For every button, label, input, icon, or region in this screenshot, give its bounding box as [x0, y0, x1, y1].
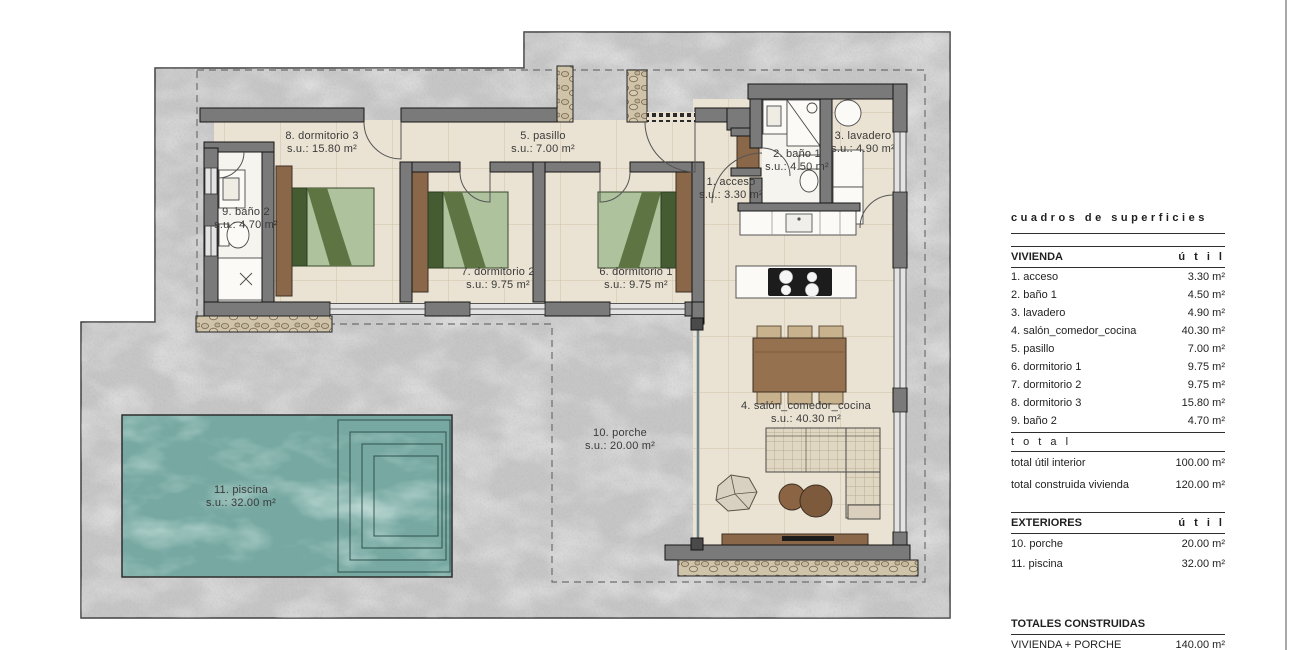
cooktop [768, 268, 832, 296]
table-row: total útil interior100.00 m² [1011, 452, 1225, 474]
laundry-sink [835, 100, 861, 126]
exteriores-header: EXTERIORES [1011, 517, 1082, 529]
gravel-strip [196, 316, 332, 332]
porch-post [691, 318, 703, 330]
util-column-header: ú t i l [1178, 251, 1225, 263]
table-row: 8. dormitorio 315.80 m² [1011, 394, 1225, 412]
table-row: VIVIENDA + PORCHE140.00 m² [1011, 635, 1225, 650]
bed [428, 192, 508, 268]
dining-set [753, 326, 846, 404]
room-label-lavadero: 3. lavadero s.u.: 4.90 m² [831, 130, 895, 155]
table-row: 1. acceso3.30 m² [1011, 268, 1225, 286]
table-row: 6. dormitorio 19.75 m² [1011, 358, 1225, 376]
room-label-dormitorio2: 7. dormitorio 2 s.u.: 9.75 m² [461, 266, 534, 291]
table-row: 4. salón_comedor_cocina40.30 m² [1011, 322, 1225, 340]
bed [292, 188, 374, 266]
washer [833, 150, 863, 187]
chair [788, 326, 812, 339]
shower-head [807, 103, 817, 113]
room-label-porche: 10. porche s.u.: 20.00 m² [585, 427, 655, 452]
wardrobe [412, 172, 428, 292]
room-label-dormitorio3: 8. dormitorio 3 s.u.: 15.80 m² [285, 130, 358, 155]
chair [757, 326, 781, 339]
totales-construidas-header-row: TOTALES CONSTRUIDAS [1011, 614, 1225, 635]
entry-threshold [647, 112, 695, 122]
table-row: 9. baño 24.70 m² [1011, 412, 1225, 430]
wardrobe [276, 166, 292, 296]
gravel-pillar [627, 70, 647, 122]
porch-post [691, 538, 703, 550]
table-row: 2. baño 14.50 m² [1011, 286, 1225, 304]
wardrobe [676, 172, 692, 292]
table-row: total construida vivienda120.00 m² [1011, 474, 1225, 496]
pool [122, 415, 452, 577]
room-label-acceso: 1. acceso s.u.: 3.30 m² [699, 176, 763, 201]
gravel-pillar [557, 66, 573, 122]
table-row: 5. pasillo7.00 m² [1011, 340, 1225, 358]
dining-table [753, 338, 846, 392]
totales-construidas-header: TOTALES CONSTRUIDAS [1011, 618, 1145, 630]
chair [819, 326, 843, 339]
exteriores-header-row: EXTERIORES ú t i l [1011, 512, 1225, 534]
toilet-bowl [800, 170, 818, 192]
vivienda-header: VIVIENDA [1011, 251, 1063, 263]
table-row: 11. piscina32.00 m² [1011, 554, 1225, 574]
room-label-pasillo: 5. pasillo s.u.: 7.00 m² [511, 130, 575, 155]
vivienda-header-row: VIVIENDA ú t i l [1011, 246, 1225, 268]
room-label-piscina: 11. piscina s.u.: 32.00 m² [206, 484, 276, 509]
table-title: cuadros de superficies [1011, 212, 1225, 234]
table-row: 3. lavadero4.90 m² [1011, 304, 1225, 322]
bed [598, 192, 676, 268]
room-label-dormitorio1: 6. dormitorio 1 s.u.: 9.75 m² [599, 266, 672, 291]
total-divider-row: t o t a l [1011, 432, 1225, 452]
room-label-salon: 4. salón_comedor_cocina s.u.: 40.30 m² [741, 400, 871, 425]
sofa-side-table [848, 505, 880, 519]
table-row: 7. dormitorio 29.75 m² [1011, 376, 1225, 394]
shower-tray [218, 258, 264, 300]
surface-table: cuadros de superficies VIVIENDA ú t i l … [1011, 212, 1225, 650]
sheet-border-line [1285, 0, 1287, 650]
util-column-header: ú t i l [1178, 517, 1225, 529]
gravel-strip [678, 560, 918, 576]
room-label-bano2: 9. baño 2 s.u.: 4.70 m² [214, 206, 278, 231]
kitchen-sink [786, 214, 812, 232]
floor-plan-sheet: 1. acceso s.u.: 3.30 m² 2. baño 1 s.u.: … [0, 0, 1291, 650]
coffee-table [800, 485, 832, 517]
table-row: 10. porche20.00 m² [1011, 534, 1225, 554]
room-label-bano1: 2. baño 1 s.u.: 4.50 m² [765, 148, 829, 173]
tv [782, 536, 834, 541]
